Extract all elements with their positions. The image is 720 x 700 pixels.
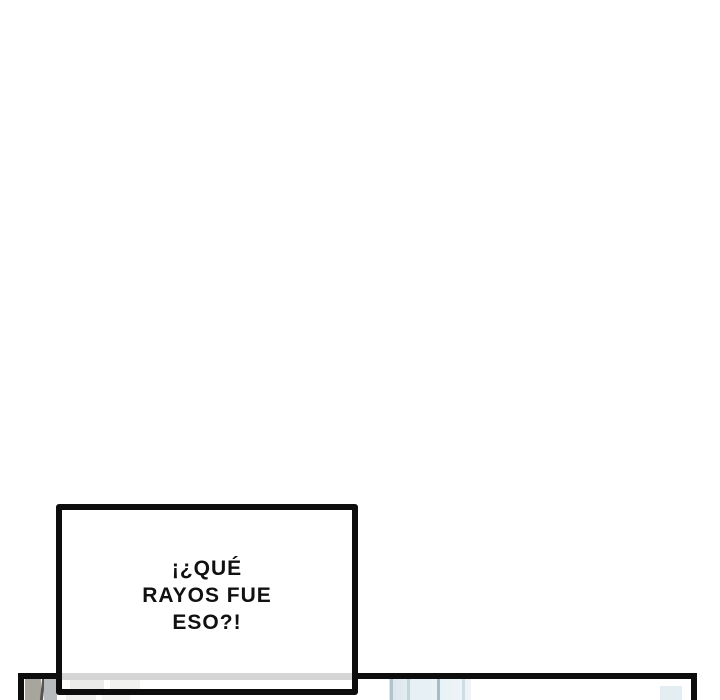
webtoon-page: ¡¿QUÉ RAYOS FUE ESO?! (0, 0, 720, 700)
panel-artwork-blue-patch (660, 686, 682, 700)
panel-artwork-blue-streak (390, 679, 393, 700)
panel-artwork-gray-block (25, 679, 41, 700)
speech-bubble-ghost-streak (110, 680, 140, 689)
speech-bubble-text-line: ESO?! (142, 609, 272, 636)
panel-artwork-blue-wash (389, 679, 471, 700)
speech-bubble-overlap-band (62, 673, 352, 680)
panel-artwork-blue-streak (407, 679, 410, 700)
speech-bubble-text-line: ¡¿QUÉ (142, 555, 272, 582)
speech-bubble-text: ¡¿QUÉ RAYOS FUE ESO?! (142, 555, 272, 636)
speech-bubble: ¡¿QUÉ RAYOS FUE ESO?! (56, 504, 358, 695)
panel-artwork-blue-streak (462, 679, 465, 700)
speech-bubble-text-line: RAYOS FUE (142, 582, 272, 609)
speech-bubble-ghost-streak (70, 680, 104, 689)
panel-artwork-blue-streak (437, 679, 440, 700)
